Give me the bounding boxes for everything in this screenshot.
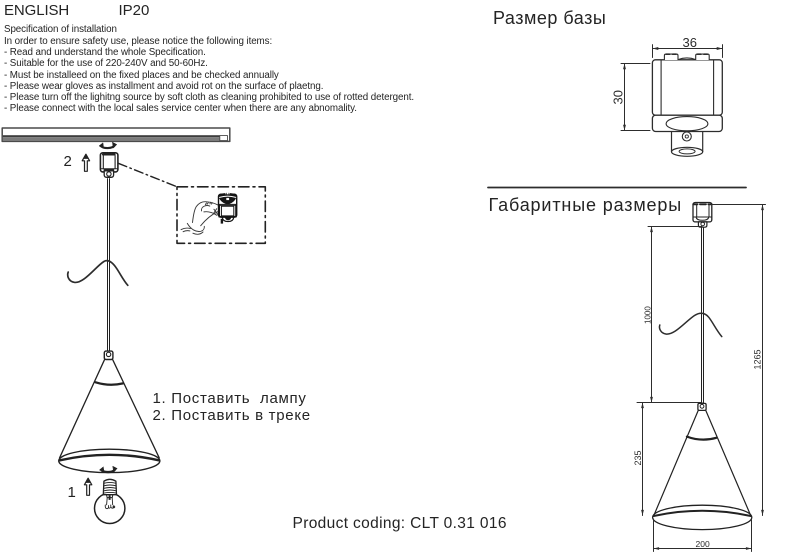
svg-text:2: 2 xyxy=(64,153,72,170)
svg-text:1: 1 xyxy=(68,484,76,501)
svg-text:235: 235 xyxy=(633,450,643,465)
svg-text:1000: 1000 xyxy=(644,306,653,324)
svg-text:200: 200 xyxy=(696,539,710,549)
svg-text:1265: 1265 xyxy=(753,349,763,369)
svg-text:36: 36 xyxy=(683,35,697,50)
svg-text:30: 30 xyxy=(611,90,626,104)
